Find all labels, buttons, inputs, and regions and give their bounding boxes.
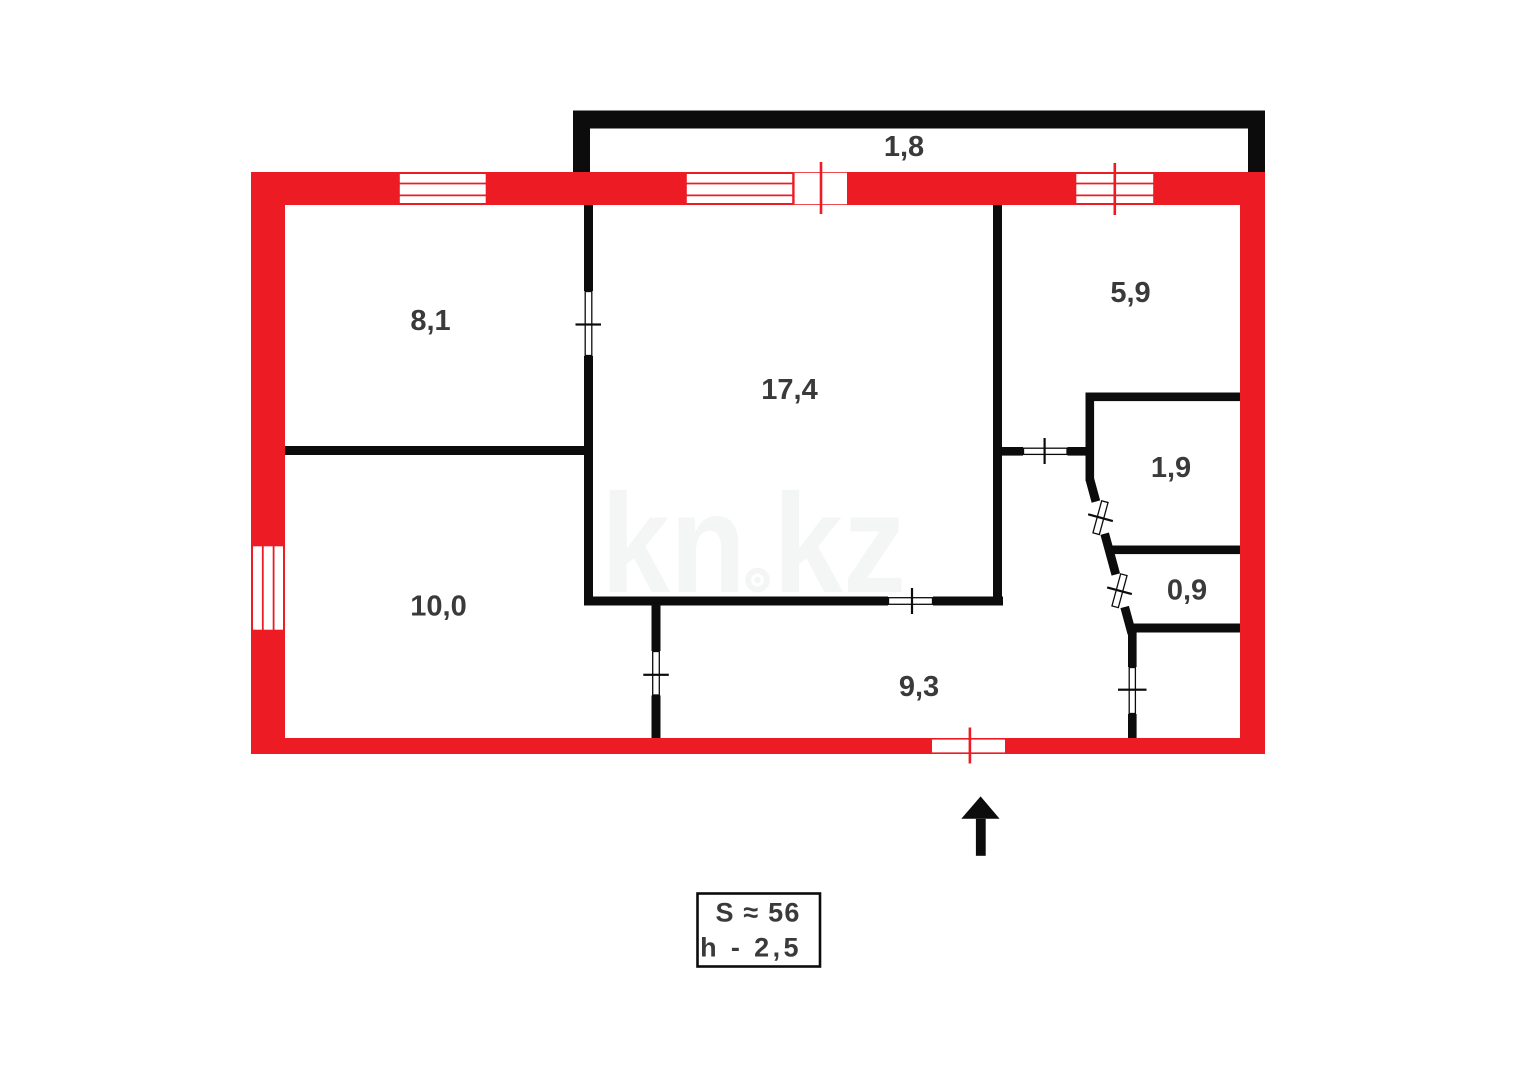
svg-text:10,0: 10,0 [410,591,466,623]
svg-text:1,8: 1,8 [884,131,924,163]
svg-text:S ≈ 56: S ≈ 56 [715,898,800,928]
svg-text:9,3: 9,3 [899,671,939,703]
svg-text:17,4: 17,4 [761,374,817,406]
svg-text:h - 2,5: h - 2,5 [700,933,802,963]
svg-text:1,9: 1,9 [1151,452,1191,484]
svg-text:5,9: 5,9 [1110,277,1150,309]
svg-text:8,1: 8,1 [410,305,450,337]
svg-text:0,9: 0,9 [1167,575,1207,607]
